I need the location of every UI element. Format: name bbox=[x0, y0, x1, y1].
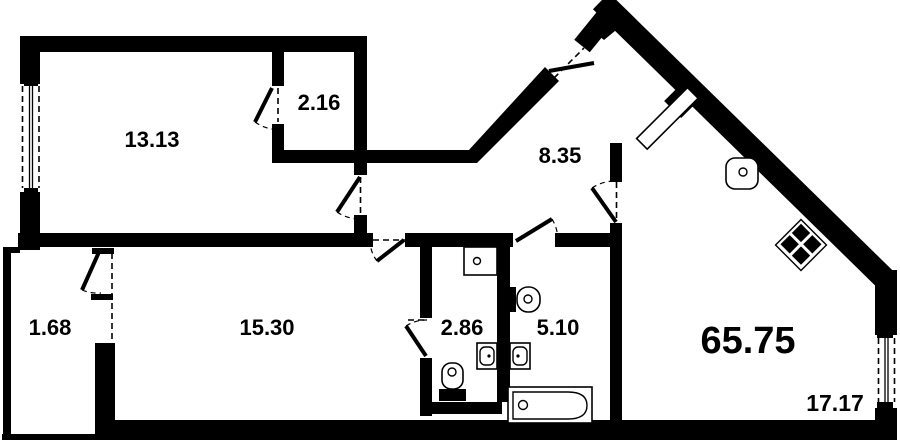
kitchen-living-area-label: 17.17 bbox=[806, 390, 864, 416]
wc-area-label: 2.86 bbox=[441, 315, 484, 340]
loggia-area-label: 1.68 bbox=[29, 315, 72, 340]
door-icon-kitchen-living bbox=[592, 181, 617, 222]
floor-plan-canvas: 13.13 2.16 8.35 1.68 15.30 2.86 5.10 65.… bbox=[0, 0, 900, 441]
hallway-area-label: 8.35 bbox=[539, 143, 582, 168]
door-icon-loggia bbox=[82, 248, 114, 343]
floor-plan: 13.13 2.16 8.35 1.68 15.30 2.86 5.10 65.… bbox=[0, 0, 900, 441]
ventilation-shaft bbox=[632, 81, 701, 150]
entrance-door-icon bbox=[549, 48, 594, 81]
total-area-label: 65.75 bbox=[700, 320, 795, 362]
kitchen-sink-icon bbox=[726, 158, 758, 189]
toilet-icon-bathroom bbox=[510, 287, 540, 312]
bedroom-area-label: 13.13 bbox=[124, 127, 179, 152]
door-icon-wardrobe bbox=[255, 88, 278, 129]
window-icon-left bbox=[23, 84, 40, 190]
washing-machine-icon bbox=[464, 247, 497, 275]
door-icon-bathroom bbox=[516, 219, 558, 241]
wardrobe-area-label: 2.16 bbox=[298, 90, 341, 115]
bathtub-icon bbox=[508, 387, 592, 423]
door-icon-bedroom bbox=[337, 177, 361, 219]
door-icon-wc bbox=[406, 320, 427, 356]
living-room-area-label: 15.30 bbox=[239, 315, 294, 340]
toilet-icon-wc bbox=[439, 363, 466, 401]
door-icon-living-room bbox=[370, 240, 405, 261]
window-icon-right bbox=[879, 334, 895, 406]
sink-icon-bathroom bbox=[510, 343, 530, 369]
bathroom-area-label: 5.10 bbox=[537, 315, 580, 340]
sink-icon-wc bbox=[477, 343, 497, 369]
